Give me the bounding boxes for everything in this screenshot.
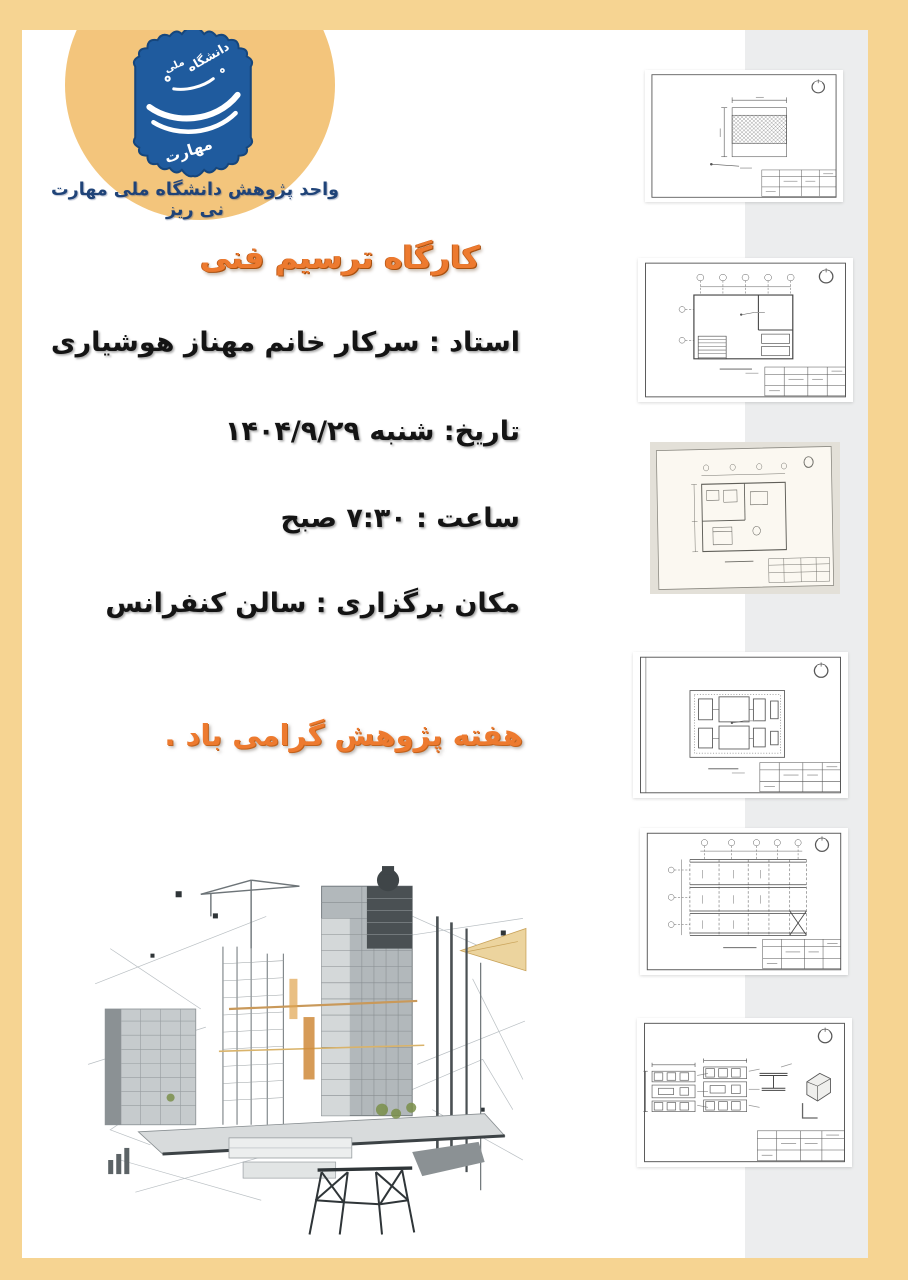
drawing-thumbnail-2: [638, 258, 853, 402]
poster-paper: دانشگاه ملی مهارت واحد پژوهش دانشگاه ملی…: [22, 30, 868, 1258]
research-unit-label: واحد پژوهش دانشگاه ملی مهارت نی ریز: [40, 180, 350, 220]
workshop-poster: دانشگاه ملی مهارت واحد پژوهش دانشگاه ملی…: [0, 0, 908, 1280]
research-week-note: هفته پژوهش گرامی باد .: [22, 718, 523, 752]
workshop-title: کارگاه ترسیم فنی: [180, 240, 500, 276]
instructor-line: استاد : سرکار خانم مهناز هوشیاری: [22, 327, 520, 358]
construction-collage-image: [80, 858, 528, 1250]
time-line: ساعت : ۷:۳۰ صبح: [22, 503, 520, 534]
drawing-thumbnail-1: [645, 70, 843, 202]
venue-line: مکان برگزاری : سالن کنفرانس: [22, 588, 520, 619]
drawing-thumbnail-4: [633, 652, 848, 798]
date-line: تاریخ: شنبه ۱۴۰۴/۹/۲۹: [22, 416, 520, 447]
drawing-thumbnail-5: [640, 828, 848, 975]
drawing-thumbnail-3: [650, 442, 840, 594]
drawing-thumbnail-6: [637, 1018, 852, 1167]
university-logo-icon: دانشگاه ملی مهارت: [117, 30, 269, 178]
